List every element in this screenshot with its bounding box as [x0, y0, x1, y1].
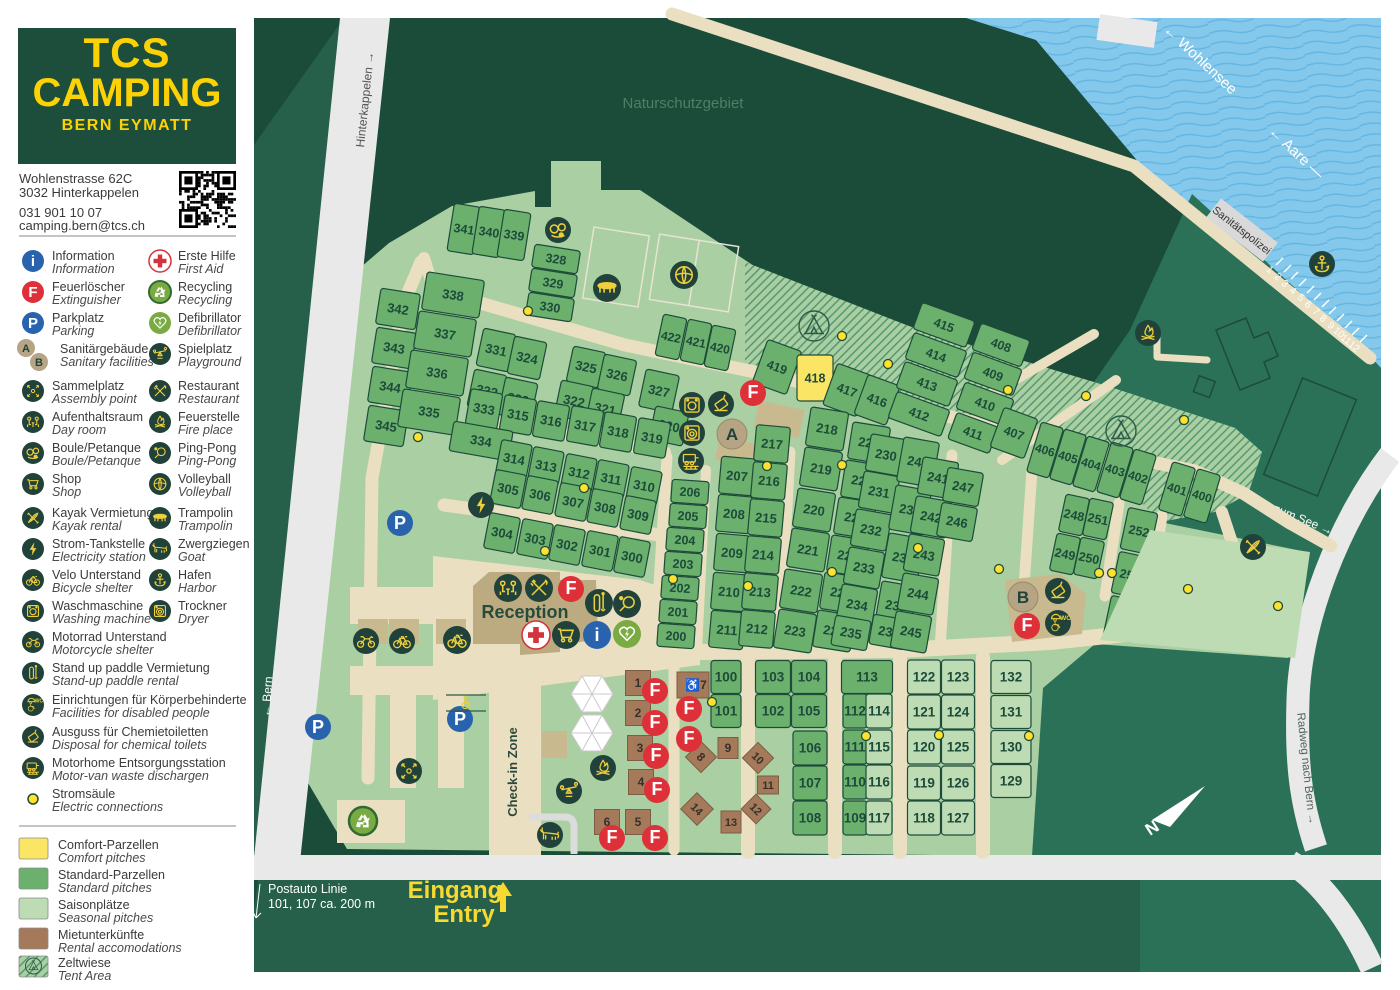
svg-text:127: 127	[947, 811, 970, 826]
svg-text:F: F	[652, 779, 663, 799]
svg-text:208: 208	[723, 506, 746, 523]
svg-text:116: 116	[868, 775, 890, 790]
svg-text:211: 211	[716, 622, 738, 639]
svg-text:215: 215	[755, 510, 778, 527]
svg-text:Restaurant: Restaurant	[178, 392, 240, 406]
svg-text:P: P	[312, 717, 324, 737]
svg-text:Trampolin: Trampolin	[178, 506, 233, 520]
svg-text:Parkplatz: Parkplatz	[52, 311, 104, 325]
svg-text:131: 131	[1000, 705, 1023, 720]
svg-text:B: B	[1017, 588, 1029, 607]
svg-text:206: 206	[679, 485, 701, 500]
svg-text:124: 124	[947, 705, 970, 720]
svg-text:Postauto Linie: Postauto Linie	[268, 882, 347, 896]
svg-text:108: 108	[799, 811, 822, 826]
svg-text:Shop: Shop	[52, 485, 81, 499]
svg-text:P: P	[394, 513, 406, 533]
svg-text:P: P	[28, 315, 38, 332]
svg-text:Strom-Tankstelle: Strom-Tankstelle	[52, 537, 145, 551]
svg-text:Aufenthaltsraum: Aufenthaltsraum	[52, 410, 143, 424]
svg-text:Electricity station: Electricity station	[52, 550, 146, 564]
svg-text:3032 Hinterkappelen: 3032 Hinterkappelen	[19, 185, 139, 200]
svg-text:214: 214	[752, 547, 776, 564]
svg-text:101: 101	[715, 704, 738, 719]
svg-text:Volleyball: Volleyball	[178, 472, 231, 486]
svg-text:122: 122	[913, 670, 936, 685]
svg-text:Zwergziegen: Zwergziegen	[178, 537, 250, 551]
svg-text:104: 104	[798, 670, 821, 685]
svg-text:Trampolin: Trampolin	[178, 519, 233, 533]
svg-text:F: F	[651, 745, 662, 765]
svg-text:F: F	[684, 698, 695, 718]
svg-text:205: 205	[677, 509, 699, 524]
svg-text:Electric connections: Electric connections	[52, 800, 163, 814]
svg-text:Comfort pitches: Comfort pitches	[58, 851, 146, 865]
svg-text:Comfort-Parzellen: Comfort-Parzellen	[58, 838, 159, 852]
svg-text:207: 207	[726, 468, 749, 485]
svg-text:Hafen: Hafen	[178, 568, 211, 582]
svg-text:Boule/Petanque: Boule/Petanque	[52, 441, 141, 455]
svg-text:418: 418	[805, 371, 826, 385]
svg-text:TCS: TCS	[84, 29, 171, 76]
svg-text:F: F	[650, 680, 661, 700]
svg-text:Extinguisher: Extinguisher	[52, 293, 122, 307]
svg-text:F: F	[28, 284, 37, 301]
svg-text:camping.bern@tcs.ch: camping.bern@tcs.ch	[19, 218, 145, 233]
svg-text:Sanitärgebäude: Sanitärgebäude	[60, 342, 148, 356]
svg-text:130: 130	[1000, 740, 1023, 755]
svg-text:Entry: Entry	[433, 901, 495, 928]
svg-text:← Bern: ← Bern	[259, 676, 276, 718]
svg-text:Kayak Vermietung: Kayak Vermietung	[52, 506, 153, 520]
svg-text:102: 102	[762, 704, 785, 719]
svg-text:Sammelplatz: Sammelplatz	[52, 379, 124, 393]
svg-text:201: 201	[667, 605, 689, 620]
svg-text:Fire place: Fire place	[178, 423, 233, 437]
svg-text:132: 132	[1000, 670, 1023, 685]
svg-text:Stand-up paddle rental: Stand-up paddle rental	[52, 674, 180, 688]
svg-text:Defibrillator: Defibrillator	[178, 311, 241, 325]
svg-text:i: i	[594, 625, 599, 645]
svg-text:Washing machine: Washing machine	[52, 612, 151, 626]
svg-text:100: 100	[715, 670, 738, 685]
svg-text:105: 105	[798, 704, 821, 719]
svg-text:F: F	[607, 827, 618, 847]
svg-text:125: 125	[947, 740, 970, 755]
svg-text:P: P	[454, 709, 466, 729]
svg-text:Disposal for chemical toilets: Disposal for chemical toilets	[52, 738, 207, 752]
svg-text:129: 129	[1000, 774, 1023, 789]
svg-text:Defibrillator: Defibrillator	[178, 324, 242, 338]
svg-text:Recycling: Recycling	[178, 293, 232, 307]
svg-text:A: A	[726, 425, 738, 444]
svg-text:Check-in Zone: Check-in Zone	[505, 727, 520, 817]
svg-text:Assembly point: Assembly point	[51, 392, 137, 406]
svg-text:11: 11	[762, 780, 774, 792]
svg-text:CAMPING: CAMPING	[33, 71, 222, 115]
svg-text:Ping-Pong: Ping-Pong	[178, 454, 236, 468]
svg-text:120: 120	[913, 740, 936, 755]
svg-text:200: 200	[665, 629, 687, 644]
svg-text:Feuerlöscher: Feuerlöscher	[52, 280, 125, 294]
svg-text:113: 113	[856, 670, 878, 685]
svg-text:BERN EYMATT: BERN EYMATT	[62, 117, 193, 134]
svg-text:217: 217	[761, 436, 784, 453]
svg-text:Motorcycle shelter: Motorcycle shelter	[52, 643, 154, 657]
svg-text:Parking: Parking	[52, 324, 94, 338]
svg-text:3: 3	[637, 741, 644, 755]
svg-text:119: 119	[913, 776, 935, 791]
svg-text:2: 2	[635, 706, 642, 720]
svg-text:Sanitary facilities: Sanitary facilities	[60, 355, 154, 369]
svg-text:109: 109	[844, 811, 867, 826]
svg-text:Reception: Reception	[481, 602, 568, 622]
svg-text:115: 115	[868, 740, 890, 755]
svg-text:Waschmaschine: Waschmaschine	[52, 599, 143, 613]
svg-text:Information: Information	[52, 262, 115, 276]
svg-text:Goat: Goat	[178, 550, 206, 564]
svg-text:110: 110	[844, 775, 866, 790]
svg-text:B: B	[35, 357, 43, 369]
svg-text:5: 5	[635, 815, 642, 829]
svg-text:204: 204	[674, 533, 696, 548]
svg-text:F: F	[566, 578, 577, 598]
svg-text:106: 106	[799, 741, 822, 756]
svg-text:Erste Hilfe: Erste Hilfe	[178, 249, 236, 263]
svg-text:Ausguss für Chemietoiletten: Ausguss für Chemietoiletten	[52, 725, 208, 739]
svg-text:112: 112	[844, 704, 866, 719]
svg-text:Zeltwiese: Zeltwiese	[58, 956, 111, 970]
svg-text:Playground: Playground	[178, 355, 242, 369]
svg-text:Shop: Shop	[52, 472, 81, 486]
svg-text:210: 210	[718, 584, 741, 601]
svg-text:114: 114	[868, 704, 890, 719]
svg-text:Facilities for disabled people: Facilities for disabled people	[52, 706, 210, 720]
svg-text:Standard pitches: Standard pitches	[58, 881, 152, 895]
svg-text:Velo Unterstand: Velo Unterstand	[52, 568, 141, 582]
svg-text:Motor-van waste dischargen: Motor-van waste dischargen	[52, 769, 209, 783]
svg-text:A: A	[22, 343, 30, 355]
svg-text:Naturschutzgebiet: Naturschutzgebiet	[623, 95, 745, 112]
svg-text:123: 123	[947, 670, 970, 685]
svg-text:Feuerstelle: Feuerstelle	[178, 410, 240, 424]
svg-text:Day room: Day room	[52, 423, 106, 437]
svg-text:Boule/Petanque: Boule/Petanque	[52, 454, 141, 468]
svg-text:Harbor: Harbor	[178, 581, 217, 595]
svg-text:F: F	[748, 382, 759, 402]
svg-text:Stand up paddle Vermietung: Stand up paddle Vermietung	[52, 661, 210, 675]
svg-text:Stromsäule: Stromsäule	[52, 787, 115, 801]
svg-text:107: 107	[799, 776, 822, 791]
svg-text:F: F	[1022, 615, 1033, 635]
svg-text:13: 13	[725, 817, 737, 829]
svg-text:Restaurant: Restaurant	[178, 379, 240, 393]
svg-text:Trockner: Trockner	[178, 599, 227, 613]
svg-text:203: 203	[672, 557, 694, 572]
svg-text:111: 111	[844, 740, 866, 755]
svg-text:101, 107 ca. 200 m: 101, 107 ca. 200 m	[268, 897, 375, 911]
svg-text:F: F	[650, 712, 661, 732]
svg-text:209: 209	[721, 545, 744, 562]
svg-text:Einrichtungen für Körperbehind: Einrichtungen für Körperbehinderte	[52, 693, 247, 707]
svg-text:212: 212	[746, 621, 769, 638]
svg-text:Dryer: Dryer	[178, 612, 209, 626]
svg-text:F: F	[684, 728, 695, 748]
svg-text:Wohlenstrasse 62C: Wohlenstrasse 62C	[19, 171, 132, 186]
svg-text:Kayak rental: Kayak rental	[52, 519, 123, 533]
svg-text:Saisonplätze: Saisonplätze	[58, 898, 130, 912]
svg-text:Eingang: Eingang	[408, 877, 503, 904]
svg-text:Ping-Pong: Ping-Pong	[178, 441, 236, 455]
svg-text:117: 117	[868, 811, 890, 826]
svg-text:i: i	[31, 253, 35, 270]
svg-text:1: 1	[635, 676, 642, 690]
svg-text:9: 9	[725, 741, 732, 755]
svg-text:216: 216	[758, 473, 781, 490]
svg-text:Information: Information	[52, 249, 115, 263]
svg-text:Motorhome Entsorgungsstation: Motorhome Entsorgungsstation	[52, 756, 226, 770]
svg-text:118: 118	[913, 811, 935, 826]
svg-text:Bicycle shelter: Bicycle shelter	[52, 581, 133, 595]
svg-text:Recycling: Recycling	[178, 280, 232, 294]
svg-text:F: F	[650, 827, 661, 847]
svg-text:Rental accomodations: Rental accomodations	[58, 941, 182, 955]
svg-text:Tent Area: Tent Area	[58, 969, 111, 983]
svg-text:121: 121	[913, 705, 936, 720]
svg-text:4: 4	[638, 775, 645, 789]
svg-text:♿7: ♿7	[685, 678, 707, 692]
svg-text:Volleyball: Volleyball	[178, 485, 232, 499]
svg-text:Spielplatz: Spielplatz	[178, 342, 232, 356]
svg-text:First Aid: First Aid	[178, 262, 224, 276]
svg-text:103: 103	[762, 670, 785, 685]
svg-text:Standard-Parzellen: Standard-Parzellen	[58, 868, 165, 882]
svg-text:Mietunterkünfte: Mietunterkünfte	[58, 928, 144, 942]
svg-text:Motorrad Unterstand: Motorrad Unterstand	[52, 630, 167, 644]
svg-text:126: 126	[947, 776, 970, 791]
svg-text:Seasonal pitches: Seasonal pitches	[58, 911, 153, 925]
